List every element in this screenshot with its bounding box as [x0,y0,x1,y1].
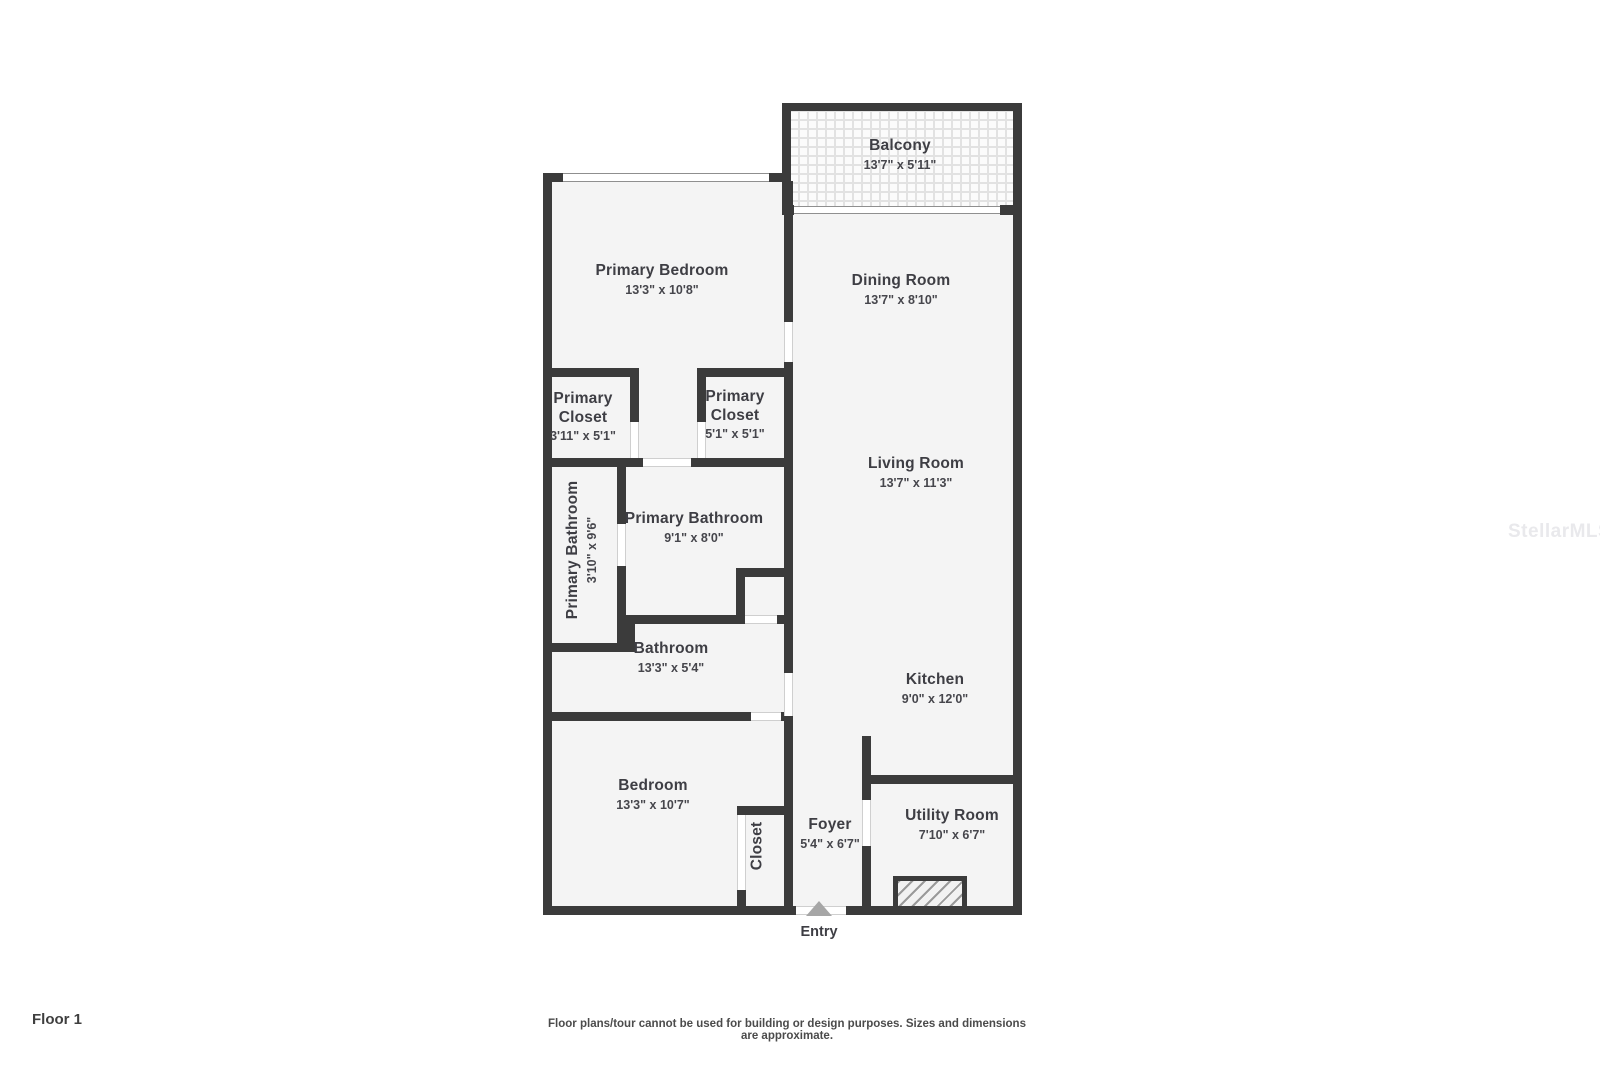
door-opening [784,322,793,362]
room-label-utility-room: Utility Room 7'10" x 6'7" [905,807,999,843]
room-dims: 5'1" x 5'1" [691,427,779,442]
wall [691,458,793,467]
disclaimer-text: Floor plans/tour cannot be used for buil… [540,1018,1034,1042]
entry-label: Entry [800,924,837,940]
room-name: Primary Bedroom [595,262,728,281]
room-name: Primary Bathroom [564,481,583,619]
room-name: Living Room [868,455,964,474]
room-dims: 7'10" x 6'7" [905,828,999,843]
room-label-closet: Closet [749,822,768,871]
room-dims: 13'7" x 5'11" [864,158,937,173]
room-dims: 13'3" x 10'8" [595,283,728,298]
room-name: Dining Room [852,272,951,291]
room-label-bedroom: Bedroom 13'3" x 10'7" [616,777,689,813]
wall [736,568,745,615]
room-label-primary-closet-left: Primary Closet 3'11" x 5'1" [539,390,627,444]
room-label-living-room: Living Room 13'7" x 11'3" [868,455,964,491]
room-dims: 13'3" x 5'4" [634,661,709,676]
wall [543,906,796,915]
room-dims: 13'7" x 11'3" [868,476,964,491]
room-name: Balcony [864,137,937,156]
right-wing-floor [782,103,1022,915]
wall [543,368,639,377]
room-name: Primary Bathroom [625,510,763,529]
wall [862,775,1013,784]
entry-arrow-icon [806,901,832,916]
room-label-primary-closet-right: Primary Closet 5'1" x 5'1" [691,388,779,442]
wall [784,716,793,915]
wall [782,205,794,215]
room-name: Primary Closet [691,388,779,425]
room-dims: 5'4" x 6'7" [800,837,860,852]
room-label-balcony: Balcony 13'7" x 5'11" [864,137,937,173]
wall [784,181,793,322]
sliding-glass-door [794,206,1000,214]
room-name: Kitchen [902,671,968,690]
wall [543,712,751,721]
wall [777,615,793,624]
wall [543,173,552,915]
wall [1013,103,1022,915]
wall [737,890,746,906]
room-name: Bathroom [634,640,709,659]
room-dims: 13'3" x 10'7" [616,798,689,813]
wall [862,784,871,800]
stellar-mls-watermark: StellarMLS [1508,521,1600,543]
room-name: Closet [749,822,768,871]
room-dims: 13'7" x 8'10" [852,293,951,308]
wall [630,368,639,422]
room-label-primary-bathroom-small: Primary Bathroom 3'10" x 9'6" [564,481,600,619]
room-dims: 9'0" x 12'0" [902,692,968,707]
closet-door-opening [737,815,746,890]
room-dims: 3'10" x 9'6" [585,481,600,619]
utility-fixture-hatch [893,876,967,906]
room-name: Utility Room [905,807,999,826]
wall [626,615,745,624]
wall [543,643,635,652]
door-opening [862,800,871,846]
room-label-primary-bedroom: Primary Bedroom 13'3" x 10'8" [595,262,728,298]
door-opening [745,615,777,624]
door-opening [751,712,781,721]
room-dims: 9'1" x 8'0" [625,531,763,546]
floor-number-label: Floor 1 [32,1011,82,1028]
wall [543,458,643,467]
room-label-foyer: Foyer 5'4" x 6'7" [800,816,860,852]
door-opening [784,673,793,716]
wall [784,362,793,673]
room-label-primary-bathroom: Primary Bathroom 9'1" x 8'0" [625,510,763,546]
wall [782,103,1022,111]
door-opening [630,422,639,458]
wall [697,368,793,377]
room-name: Primary Closet [539,390,627,427]
floor-plan-page: Balcony 13'7" x 5'11" Primary Bedroom 13… [0,0,1600,1066]
room-label-kitchen: Kitchen 9'0" x 12'0" [902,671,968,707]
room-name: Foyer [800,816,860,835]
room-label-dining-room: Dining Room 13'7" x 8'10" [852,272,951,308]
wall [846,906,1022,915]
wall [737,806,793,815]
room-name: Bedroom [616,777,689,796]
wall [617,566,626,652]
room-dims: 3'11" x 5'1" [539,429,627,444]
room-label-bathroom: Bathroom 13'3" x 5'4" [634,640,709,676]
door-opening [643,458,691,467]
wall [862,846,871,906]
wall [1000,205,1013,215]
window [563,173,769,182]
